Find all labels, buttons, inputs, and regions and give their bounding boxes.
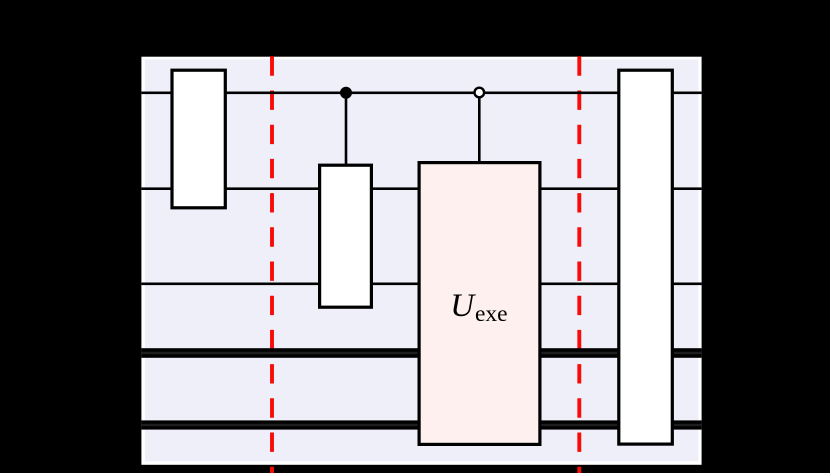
svg-text:U: U bbox=[450, 288, 476, 324]
svg-text:exe: exe bbox=[475, 301, 508, 327]
